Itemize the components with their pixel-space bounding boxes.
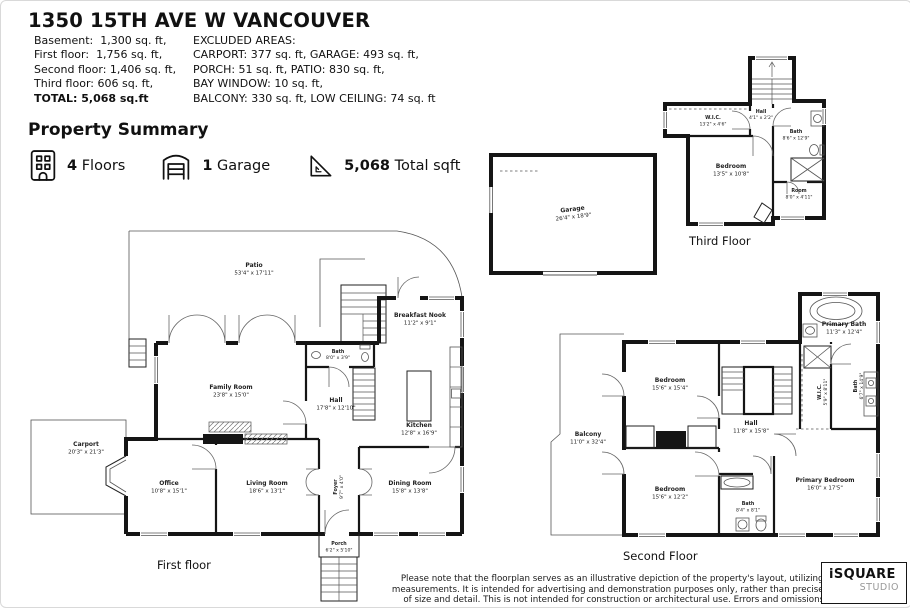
room-label-living-room: Living Room <box>246 480 288 487</box>
summary-item-floors: 4 Floors <box>28 149 125 182</box>
main-stairs <box>353 368 375 420</box>
excluded-line-porch: PORCH: 51 sq. ft, PATIO: 830 sq. ft, <box>193 63 436 77</box>
garage-door <box>543 269 597 277</box>
room-dims-office: 10'8" x 15'1" <box>151 489 187 495</box>
room-dims-primary-bedroom: 16'0" x 17'5" <box>807 486 843 492</box>
room-label-breakfast-nook: Breakfast Nook <box>394 312 447 319</box>
area-line-second: Second floor: 1,406 sq. ft, <box>34 63 176 77</box>
interior-walls <box>126 343 462 534</box>
room-dims-carport: 20'3" x 21'3" <box>68 450 104 456</box>
room-dims-patio: 53'4" x 17'11" <box>234 271 273 277</box>
garage-icon <box>159 149 193 182</box>
summary-item-sqft: 5,068 Total sqft <box>304 150 460 181</box>
room-label-bath-ff: Bath <box>332 349 345 355</box>
room-dims-wic-3f: 13'2" x 4'6" <box>699 122 726 128</box>
floors-count: 4 Floors <box>67 158 125 174</box>
area-summary-left: Basement: 1,300 sq. ft, First floor: 1,7… <box>34 34 176 106</box>
windows <box>140 296 464 536</box>
garage-label-group: Garage 26'4" x 18'9" <box>554 204 591 223</box>
room-dims-bath-3f: 8'6" x 12'9" <box>782 136 809 142</box>
doors <box>602 344 851 476</box>
garage-count: 1 Garage <box>202 158 270 174</box>
property-summary-row: 4 Floors 1 Garage 5,068 Total sqft <box>28 149 460 182</box>
excluded-line-balcony: BALCONY: 330 sq. ft, LOW CEILING: 74 sq.… <box>193 92 436 106</box>
fireplace-builtins <box>203 422 287 444</box>
room-dims-wic-2f: 5'9" x 8'11" <box>823 378 829 405</box>
room-dims-room-3f: 8'0" x 4'11" <box>785 195 812 201</box>
second-floor-label: Second Floor <box>623 549 698 563</box>
side-steps <box>129 339 146 367</box>
third-floor-label: Third Floor <box>688 234 751 248</box>
excluded-line-carport: CARPORT: 377 sq. ft, GARAGE: 493 sq. ft, <box>193 48 436 62</box>
ruler-triangle-icon <box>304 150 335 181</box>
room-dims-hall-ff: 17'8" x 12'10" <box>316 406 355 412</box>
room-dims-hall-2f: 11'8" x 15'8" <box>733 429 769 435</box>
stairwell <box>722 367 792 414</box>
corner-bay <box>754 203 772 223</box>
logo-primary: iSQUARE <box>829 568 899 582</box>
room-dims-bedroom-3f: 13'5" x 10'8" <box>713 172 749 178</box>
room-label-bedroom-bottom: Bedroom <box>655 486 685 493</box>
room-dims-bath-ff: 8'0" x 3'9" <box>326 355 350 361</box>
building-icon <box>28 149 58 182</box>
area-line-basement: Basement: 1,300 sq. ft, <box>34 34 176 48</box>
room-dims-bedroom-bottom: 15'6" x 12'2" <box>652 495 688 501</box>
stair-tower <box>752 62 792 104</box>
first-floor-plan: Patio 53'4" x 17'11" Breakfast Nook 11'2… <box>29 217 474 607</box>
room-dims-bath-center: 8'4" x 8'1" <box>736 508 760 514</box>
room-dims-bedroom-top: 15'6" x 15'4" <box>652 386 688 392</box>
room-labels: W.I.C. 13'2" x 4'6" Hall 4'1" x 2'2" Bat… <box>699 109 812 201</box>
shower <box>791 158 824 181</box>
area-line-first: First floor: 1,756 sq. ft, <box>34 48 176 62</box>
room-dims-dining-room: 15'8" x 13'8" <box>392 489 428 495</box>
room-label-primary-bath: Primary Bath <box>822 321 866 328</box>
room-dims-breakfast-nook: 11'2" x 9'1" <box>404 321 436 327</box>
room-dims-primary-bath: 11'3" x 12'4" <box>826 330 862 336</box>
room-label-hall-2f: Hall <box>744 420 757 427</box>
room-dims-hall-3f: 4'1" x 2'2" <box>749 115 773 121</box>
room-dims-living-room: 18'6" x 13'1" <box>249 489 285 495</box>
area-line-total: TOTAL: 5,068 sq.ft <box>34 92 176 106</box>
room-label-wic-3f: W.I.C. <box>705 115 721 121</box>
room-label-wic-2f: W.I.C. <box>817 384 823 400</box>
room-dims-foyer: 9'7" x 4'0" <box>339 475 345 499</box>
bay-window <box>106 456 129 496</box>
room-label-hall-ff: Hall <box>329 397 342 404</box>
excluded-heading: EXCLUDED AREAS: <box>193 34 436 48</box>
second-floor-plan: Primary Bath 11'3" x 12'4" Bedroom 15'6"… <box>539 284 910 579</box>
isquare-studio-logo: iSQUARE STUDIO <box>821 562 907 604</box>
carport-outline <box>31 420 126 514</box>
room-label-bedroom-3f: Bedroom <box>716 163 746 170</box>
room-label-room-3f: Room <box>791 188 806 194</box>
room-label-bath-3f: Bath <box>790 129 803 135</box>
room-label-hall-3f: Hall <box>756 109 767 115</box>
room-label-carport: Carport <box>73 441 99 448</box>
exterior-walls <box>126 298 462 534</box>
room-label-bath-center: Bath <box>742 501 755 507</box>
room-label-patio: Patio <box>245 262 262 269</box>
room-label-bath-side: Bath <box>853 379 859 392</box>
closets <box>626 426 716 448</box>
sqft-count: 5,068 Total sqft <box>344 158 460 174</box>
room-label-porch: Porch <box>331 541 347 547</box>
first-floor-label: First floor <box>157 558 211 572</box>
room-label-foyer: Foyer <box>333 479 339 495</box>
room-label-kitchen: Kitchen <box>406 422 432 429</box>
interior-walls <box>688 104 824 218</box>
room-label-office: Office <box>159 480 178 487</box>
page-title: 1350 15TH AVE W VANCOUVER <box>28 9 370 32</box>
third-floor-plan: W.I.C. 13'2" x 4'6" Hall 4'1" x 2'2" Bat… <box>661 51 910 266</box>
logo-secondary: STUDIO <box>829 582 899 593</box>
side-bath-fixtures <box>864 372 878 416</box>
shower <box>804 346 831 368</box>
summary-item-garage: 1 Garage <box>159 149 270 182</box>
room-dims-bath-side: 6'7" x 14'9" <box>859 372 865 399</box>
room-label-family-room: Family Room <box>209 384 252 391</box>
area-summary-right: EXCLUDED AREAS: CARPORT: 377 sq. ft, GAR… <box>193 34 436 106</box>
room-dims-kitchen: 12'8" x 16'9" <box>401 431 437 437</box>
room-label-balcony: Balcony <box>575 431 602 438</box>
room-label-bedroom-top: Bedroom <box>655 377 685 384</box>
floorplan-page: 1350 15TH AVE W VANCOUVER Basement: 1,30… <box>0 0 910 608</box>
garage-plan: Garage 26'4" x 18'9" <box>485 147 663 287</box>
excluded-line-baywin: BAY WINDOW: 10 sq. ft, <box>193 77 436 91</box>
property-summary-heading: Property Summary <box>28 120 208 140</box>
room-dims-balcony: 11'0" x 32'4" <box>570 440 606 446</box>
garage-window <box>489 187 494 213</box>
area-line-third: Third floor: 606 sq. ft, <box>34 77 176 91</box>
room-dims-porch: 6'2" x 5'10" <box>325 548 352 554</box>
room-dims-family-room: 23'8" x 15'0" <box>213 393 249 399</box>
room-label-dining-room: Dining Room <box>388 480 431 487</box>
room-label-primary-bedroom: Primary Bedroom <box>795 477 854 484</box>
